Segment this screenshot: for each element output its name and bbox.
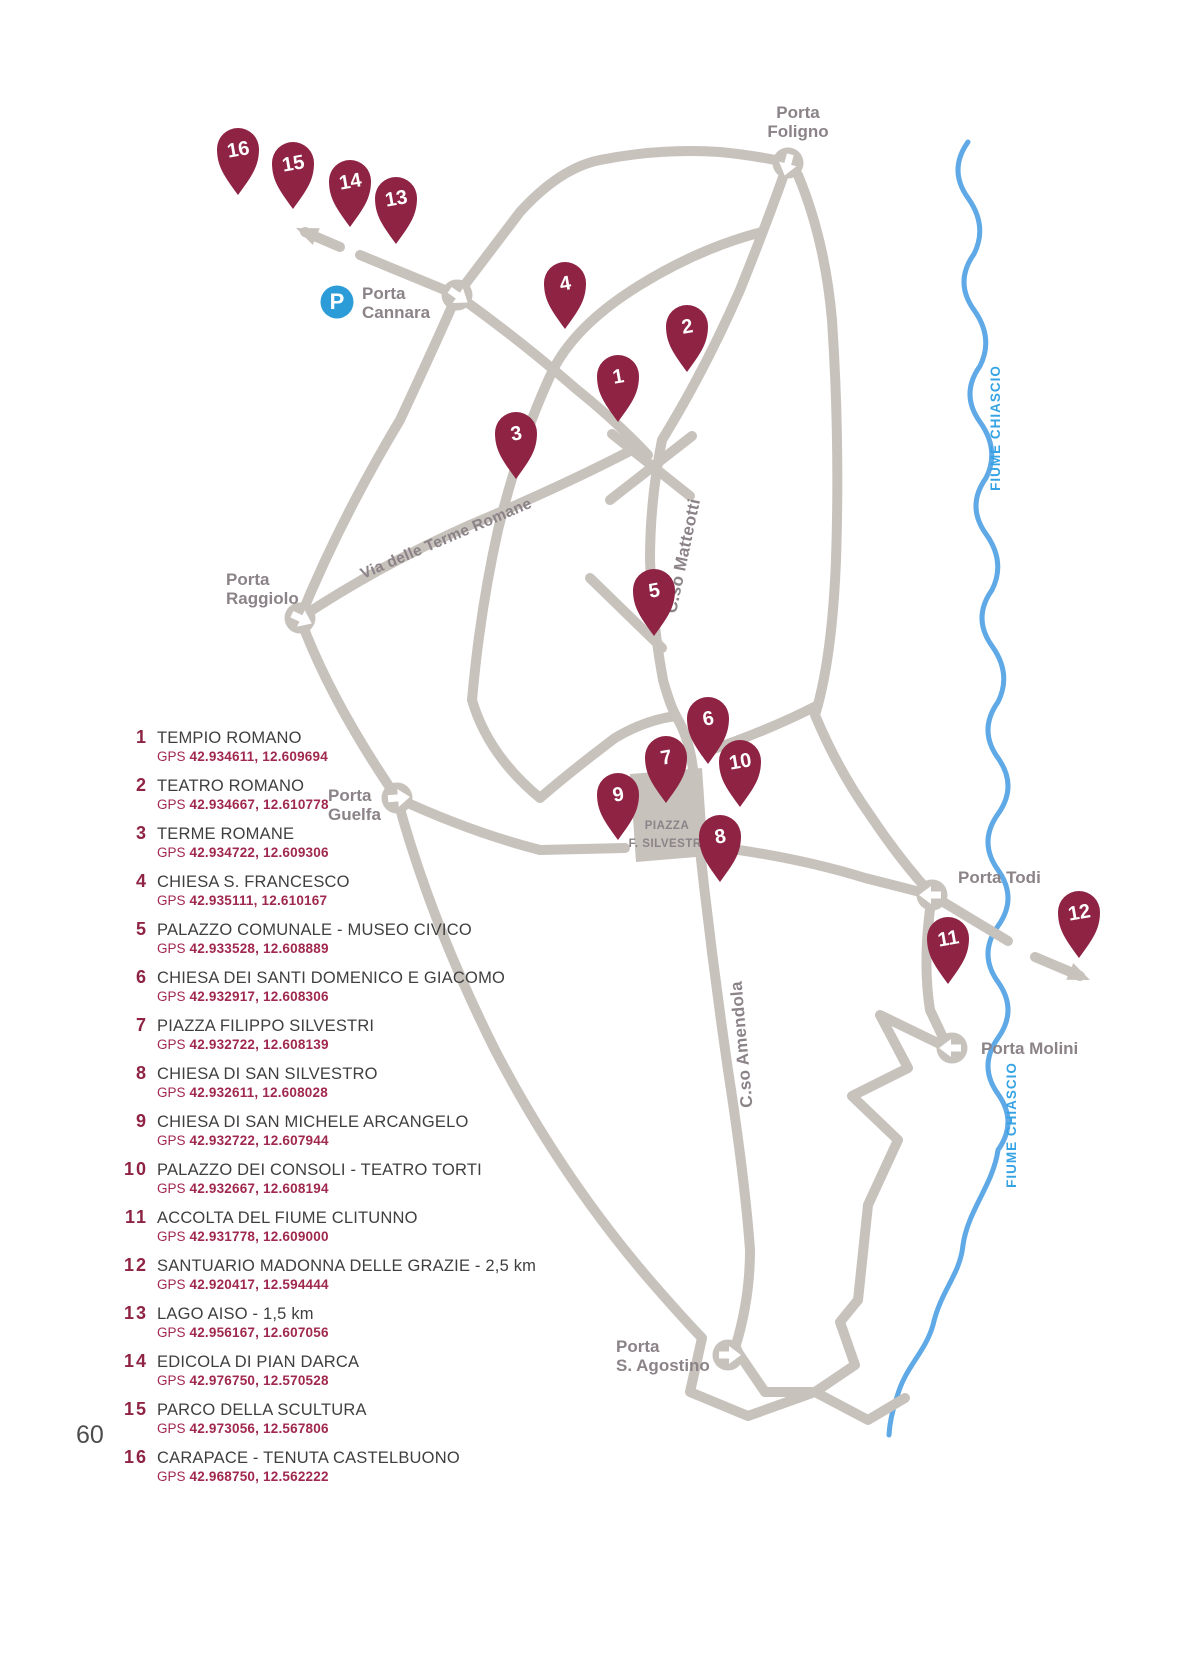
legend-item-gps: GPS42.932667, 12.608194	[157, 1180, 614, 1197]
legend-item-number: 2	[114, 775, 148, 795]
legend-item-number: 11	[114, 1207, 148, 1227]
legend-item-name: PIAZZA FILIPPO SILVESTRI	[157, 1016, 374, 1036]
legend-item-gps: GPS42.956167, 12.607056	[157, 1324, 614, 1341]
label-porta-raggiolo: PortaRaggiolo	[226, 570, 299, 608]
parking-icon: P	[321, 286, 354, 319]
legend-item-name: PARCO DELLA SCULTURA	[157, 1400, 367, 1420]
pin-number: 15	[280, 151, 306, 177]
gps-value: 42.932667, 12.608194	[190, 1181, 329, 1196]
legend-item-1: 1TEMPIO ROMANOGPS42.934611, 12.609694	[114, 727, 614, 765]
legend-item-number: 10	[114, 1159, 148, 1179]
gps-value: 42.932722, 12.608139	[190, 1037, 329, 1052]
legend-item-name: SANTUARIO MADONNA DELLE GRAZIE - 2,5 km	[157, 1256, 536, 1276]
legend-item-6: 6CHIESA DEI SANTI DOMENICO E GIACOMOGPS4…	[114, 967, 614, 1005]
legend-item-gps: GPS42.920417, 12.594444	[157, 1276, 614, 1293]
legend-item-number: 15	[114, 1399, 148, 1419]
map-pin-10[interactable]: 10	[719, 740, 761, 807]
piazza-label-line1: PIAZZA	[645, 820, 690, 832]
gps-value: 42.933528, 12.608889	[190, 941, 329, 956]
legend-item-name: CHIESA S. FRANCESCO	[157, 872, 350, 892]
legend-item-gps: GPS42.934667, 12.610778	[157, 796, 614, 813]
legend-item-number: 1	[114, 727, 148, 747]
legend-item-gps: GPS42.934611, 12.609694	[157, 748, 614, 765]
legend-item-2: 2TEATRO ROMANOGPS42.934667, 12.610778	[114, 775, 614, 813]
legend-item-number: 6	[114, 967, 148, 987]
gps-value: 42.934722, 12.609306	[190, 845, 329, 860]
road-top-wall	[457, 151, 788, 295]
gps-prefix: GPS	[157, 893, 186, 908]
gps-value: 42.934667, 12.610778	[190, 797, 329, 812]
gps-value: 42.932722, 12.607944	[190, 1133, 329, 1148]
legend-item-number: 13	[114, 1303, 148, 1323]
gps-value: 42.934611, 12.609694	[190, 749, 328, 764]
legend-item-12: 12SANTUARIO MADONNA DELLE GRAZIE - 2,5 k…	[114, 1255, 614, 1293]
gps-prefix: GPS	[157, 1181, 186, 1196]
gps-value: 42.931778, 12.609000	[190, 1229, 329, 1244]
legend-item-5: 5PALAZZO COMUNALE - MUSEO CIVICOGPS42.93…	[114, 919, 614, 957]
legend-item-number: 14	[114, 1351, 148, 1371]
label-porta-s-agostino: PortaS. Agostino	[616, 1337, 710, 1375]
pin-number: 11	[936, 926, 961, 951]
gps-prefix: GPS	[157, 989, 186, 1004]
pin-number: 16	[225, 137, 251, 163]
gps-prefix: GPS	[157, 797, 186, 812]
pin-number: 12	[1066, 900, 1092, 926]
gps-value: 42.956167, 12.607056	[190, 1325, 329, 1340]
gps-value: 42.920417, 12.594444	[190, 1277, 329, 1292]
gps-prefix: GPS	[157, 749, 186, 764]
label-porta-cannara: PortaCannara	[362, 284, 431, 322]
legend-item-name: CHIESA DI SAN MICHELE ARCANGELO	[157, 1112, 469, 1132]
legend-item-number: 8	[114, 1063, 148, 1083]
legend-item-name: PALAZZO COMUNALE - MUSEO CIVICO	[157, 920, 472, 940]
pin-number: 13	[383, 186, 409, 212]
river-label: FIUME CHIASCIO	[988, 365, 1003, 491]
legend-item-15: 15PARCO DELLA SCULTURAGPS42.973056, 12.5…	[114, 1399, 614, 1437]
legend-item-gps: GPS42.931778, 12.609000	[157, 1228, 614, 1245]
legend-item-14: 14EDICOLA DI PIAN DARCAGPS42.976750, 12.…	[114, 1351, 614, 1389]
legend-item-16: 16CARAPACE - TENUTA CASTELBUONOGPS42.968…	[114, 1447, 614, 1485]
label-porta-molini: Porta Molini	[981, 1039, 1078, 1058]
map-pin-11[interactable]: 11	[927, 917, 969, 984]
legend-item-name: CARAPACE - TENUTA CASTELBUONO	[157, 1448, 460, 1468]
legend-item-10: 10PALAZZO DEI CONSOLI - TEATRO TORTIGPS4…	[114, 1159, 614, 1197]
piazza-label-line2: F. SILVESTRI	[629, 838, 706, 850]
gps-value: 42.932611, 12.608028	[190, 1085, 328, 1100]
road-east-wall	[798, 175, 932, 895]
map-pin-14[interactable]: 14	[329, 160, 371, 227]
river-label: FIUME CHIASCIO	[1004, 1062, 1019, 1188]
legend-item-name: CHIESA DEI SANTI DOMENICO E GIACOMO	[157, 968, 505, 988]
legend-item-11: 11ACCOLTA DEL FIUME CLITUNNOGPS42.931778…	[114, 1207, 614, 1245]
legend-item-9: 9CHIESA DI SAN MICHELE ARCANGELOGPS42.93…	[114, 1111, 614, 1149]
street-label: Via delle Terme Romane	[358, 495, 534, 583]
gps-prefix: GPS	[157, 941, 186, 956]
legend-item-gps: GPS42.935111, 12.610167	[157, 892, 614, 909]
legend-item-name: ACCOLTA DEL FIUME CLITUNNO	[157, 1208, 418, 1228]
legend-item-number: 4	[114, 871, 148, 891]
gps-value: 42.973056, 12.567806	[190, 1421, 329, 1436]
page-number: 60	[76, 1421, 104, 1450]
road-molini-zigzag	[852, 1015, 948, 1300]
map-pin-15[interactable]: 15	[272, 142, 314, 209]
legend-item-gps: GPS42.976750, 12.570528	[157, 1372, 614, 1389]
legend-item-7: 7PIAZZA FILIPPO SILVESTRIGPS42.932722, 1…	[114, 1015, 614, 1053]
legend-item-name: TEMPIO ROMANO	[157, 728, 302, 748]
svg-text:P: P	[330, 289, 345, 314]
legend-item-gps: GPS42.933528, 12.608889	[157, 940, 614, 957]
map-pin-16[interactable]: 16	[217, 128, 259, 195]
gate-porta-molini	[937, 1033, 968, 1064]
gps-prefix: GPS	[157, 1325, 186, 1340]
gps-prefix: GPS	[157, 1229, 186, 1244]
gps-value: 42.935111, 12.610167	[190, 893, 328, 908]
legend-item-4: 4CHIESA S. FRANCESCOGPS42.935111, 12.610…	[114, 871, 614, 909]
legend-item-gps: GPS42.932722, 12.607944	[157, 1132, 614, 1149]
legend-item-gps: GPS42.973056, 12.567806	[157, 1420, 614, 1437]
legend-item-number: 16	[114, 1447, 148, 1467]
legend-item-name: PALAZZO DEI CONSOLI - TEATRO TORTI	[157, 1160, 482, 1180]
gate-porta-s-agostino	[713, 1340, 744, 1371]
gps-value: 42.976750, 12.570528	[190, 1373, 329, 1388]
legend-item-name: TEATRO ROMANO	[157, 776, 304, 796]
legend-item-name: CHIESA DI SAN SILVESTRO	[157, 1064, 378, 1084]
gps-value: 42.932917, 12.608306	[190, 989, 329, 1004]
legend-item-3: 3TERME ROMANEGPS42.934722, 12.609306	[114, 823, 614, 861]
map-pin-3[interactable]: 3	[495, 412, 537, 479]
gate-porta-foligno	[773, 148, 804, 179]
legend-item-name: LAGO AISO - 1,5 km	[157, 1304, 314, 1324]
gps-prefix: GPS	[157, 1421, 186, 1436]
gps-prefix: GPS	[157, 1469, 186, 1484]
gps-prefix: GPS	[157, 1085, 186, 1100]
legend-item-gps: GPS42.932611, 12.608028	[157, 1084, 614, 1101]
gps-prefix: GPS	[157, 1133, 186, 1148]
legend-item-gps: GPS42.934722, 12.609306	[157, 844, 614, 861]
gps-value: 42.968750, 12.562222	[190, 1469, 329, 1484]
legend-item-gps: GPS42.932917, 12.608306	[157, 988, 614, 1005]
legend-item-gps: GPS42.968750, 12.562222	[157, 1468, 614, 1485]
label-porta-todi: Porta Todi	[958, 868, 1041, 887]
legend-item-name: TERME ROMANE	[157, 824, 294, 844]
map-pin-13[interactable]: 13	[375, 177, 417, 244]
legend-item-number: 3	[114, 823, 148, 843]
gps-prefix: GPS	[157, 1037, 186, 1052]
legend-item-number: 12	[114, 1255, 148, 1275]
legend-item-name: EDICOLA DI PIAN DARCA	[157, 1352, 359, 1372]
river-line	[889, 142, 1008, 1435]
pin-number: 10	[727, 749, 753, 775]
legend-item-gps: GPS42.932722, 12.608139	[157, 1036, 614, 1053]
map-pin-4[interactable]: 4	[544, 262, 586, 329]
legend-item-13: 13LAGO AISO - 1,5 kmGPS42.956167, 12.607…	[114, 1303, 614, 1341]
gps-prefix: GPS	[157, 845, 186, 860]
label-porta-foligno: PortaFoligno	[767, 103, 828, 141]
gps-prefix: GPS	[157, 1373, 186, 1388]
legend-item-number: 7	[114, 1015, 148, 1035]
map-pin-12[interactable]: 12	[1058, 891, 1100, 958]
legend: 1TEMPIO ROMANOGPS42.934611, 12.6096942TE…	[114, 727, 614, 1495]
gps-prefix: GPS	[157, 1277, 186, 1292]
legend-item-8: 8CHIESA DI SAN SILVESTROGPS42.932611, 12…	[114, 1063, 614, 1101]
legend-item-number: 5	[114, 919, 148, 939]
legend-item-number: 9	[114, 1111, 148, 1131]
gate-porta-todi	[917, 880, 948, 911]
